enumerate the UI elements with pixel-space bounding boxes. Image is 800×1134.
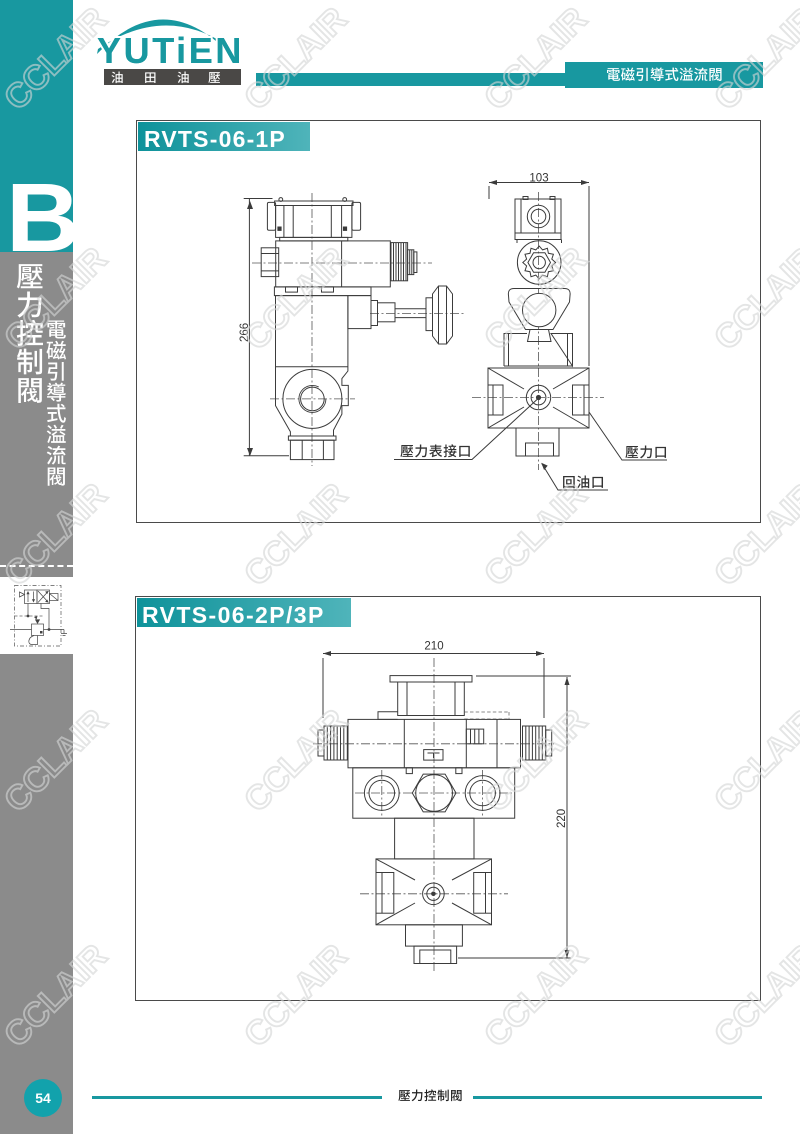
- svg-text:CCLAIR: CCLAIR: [707, 0, 800, 118]
- svg-text:103: 103: [529, 173, 548, 185]
- svg-text:266: 266: [239, 323, 251, 342]
- svg-text:YUTiEN: YUTiEN: [97, 30, 244, 71]
- svg-text:210: 210: [424, 641, 443, 653]
- svg-text:CCLAIR: CCLAIR: [477, 0, 595, 118]
- svg-text:220: 220: [556, 809, 568, 828]
